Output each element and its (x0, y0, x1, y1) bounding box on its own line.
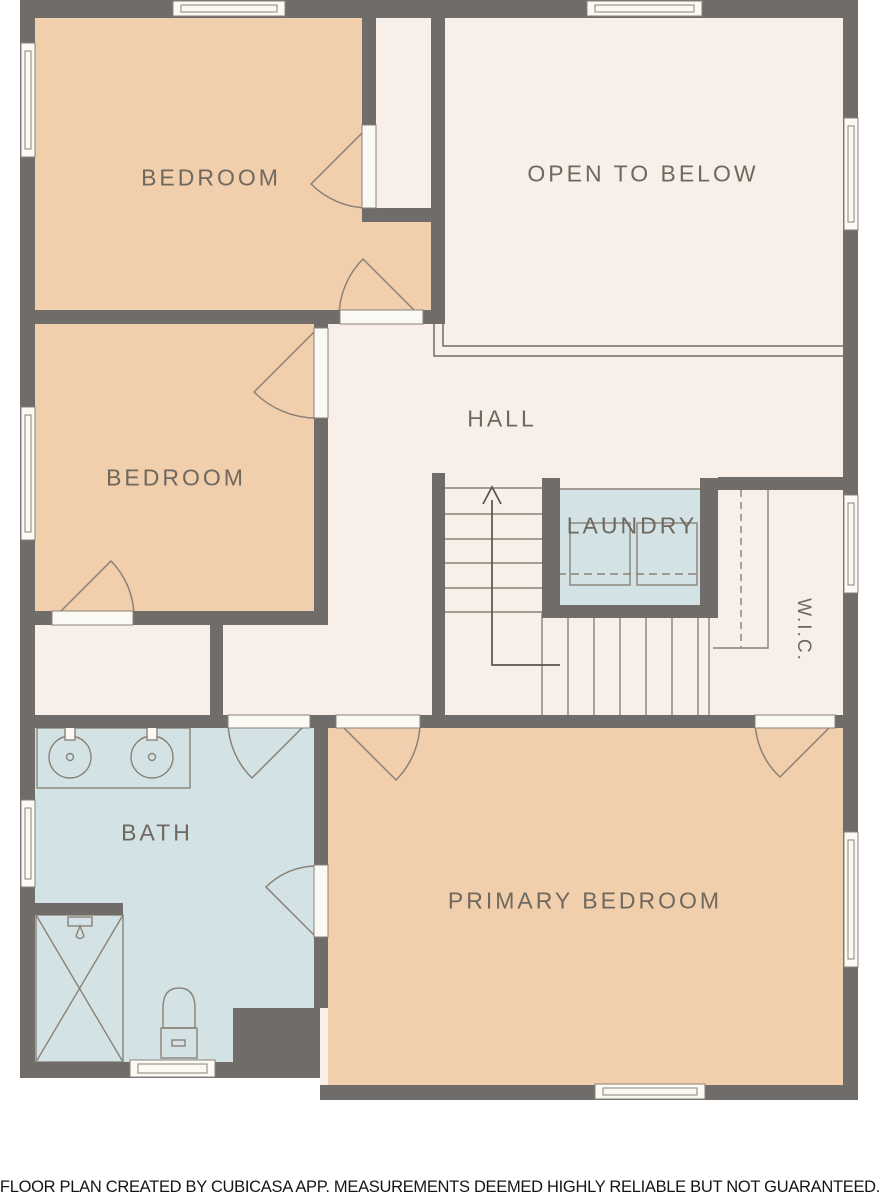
window (595, 1084, 705, 1099)
bedroom-mid-closet-door-panel (52, 611, 133, 625)
laundry-floor (558, 489, 700, 605)
floor-plan: BEDROOM OPEN TO BELOW BEDROOM HALL LAUND… (0, 0, 880, 1200)
wic-door-panel (755, 715, 835, 728)
bedroom-mid-door-panel (314, 328, 328, 418)
bedroom-mid-label: BEDROOM (106, 465, 246, 492)
bedroom-top-door-panel (340, 310, 423, 324)
window (844, 832, 858, 967)
bath-primary-door-panel (314, 865, 328, 937)
primary-bedroom-label: PRIMARY BEDROOM (448, 888, 722, 915)
laundry-label: LAUNDRY (567, 513, 698, 540)
window (130, 1060, 215, 1077)
window (21, 800, 35, 887)
window (844, 118, 858, 230)
structural-block (233, 1008, 320, 1078)
hall-label: HALL (467, 406, 537, 433)
bedroom-top-label: BEDROOM (141, 165, 281, 192)
window (21, 407, 35, 540)
window (21, 43, 35, 157)
window (587, 1, 702, 16)
open-to-below-label: OPEN TO BELOW (527, 161, 758, 188)
window (844, 495, 858, 593)
wic-label: W.I.C. (792, 598, 814, 662)
closet-top-floor (376, 18, 431, 208)
bath-door-panel (228, 715, 310, 728)
bath-label: BATH (121, 820, 193, 847)
closet-door-panel (362, 125, 376, 208)
window (173, 1, 285, 16)
faucet-icon (65, 726, 75, 740)
disclaimer-text: FLOOR PLAN CREATED BY CUBICASA APP. MEAS… (0, 1178, 880, 1197)
faucet-icon (147, 726, 157, 740)
primary-door-panel (336, 715, 420, 728)
